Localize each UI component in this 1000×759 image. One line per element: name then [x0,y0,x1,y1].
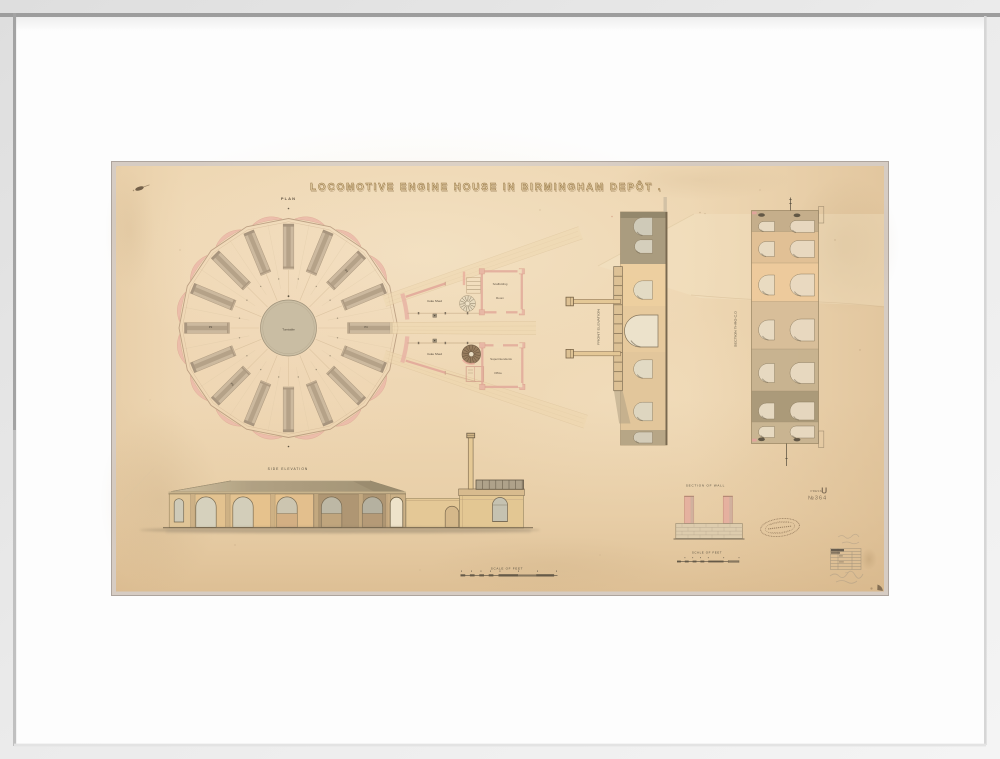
svg-text:PRESS: PRESS [811,489,822,493]
svg-text:Room: Room [496,296,505,300]
svg-text:PLAN: PLAN [281,196,296,201]
svg-text:FRONT ELEVATION: FRONT ELEVATION [597,309,601,345]
svg-text:Superintendents: Superintendents [490,357,512,361]
svg-text:U: U [821,487,827,496]
svg-text:Coke Shed: Coke Shed [427,299,442,303]
svg-text:SECTION THRO C.D: SECTION THRO C.D [734,310,738,347]
svg-text:Turntable: Turntable [282,328,295,332]
svg-text:SIDE ELEVATION: SIDE ELEVATION [268,467,309,471]
svg-text:SECTION OF WALL: SECTION OF WALL [686,484,725,488]
svg-text:SCALE OF FEET: SCALE OF FEET [491,567,523,571]
svg-text:LOCOMOTIVE ENGINE HOUSE IN BIR: LOCOMOTIVE ENGINE HOUSE IN BIRMINGHAM DE… [310,181,662,193]
svg-text:Coke Shed: Coke Shed [427,352,442,356]
svg-text:Scaffolding: Scaffolding [493,282,508,286]
svg-text:№364: №364 [808,496,827,502]
svg-text:SCALE OF FEET: SCALE OF FEET [692,551,722,555]
svg-text:Pit: Pit [364,325,367,329]
svg-text:Pit: Pit [209,325,212,329]
svg-text:Office: Office [494,371,502,375]
